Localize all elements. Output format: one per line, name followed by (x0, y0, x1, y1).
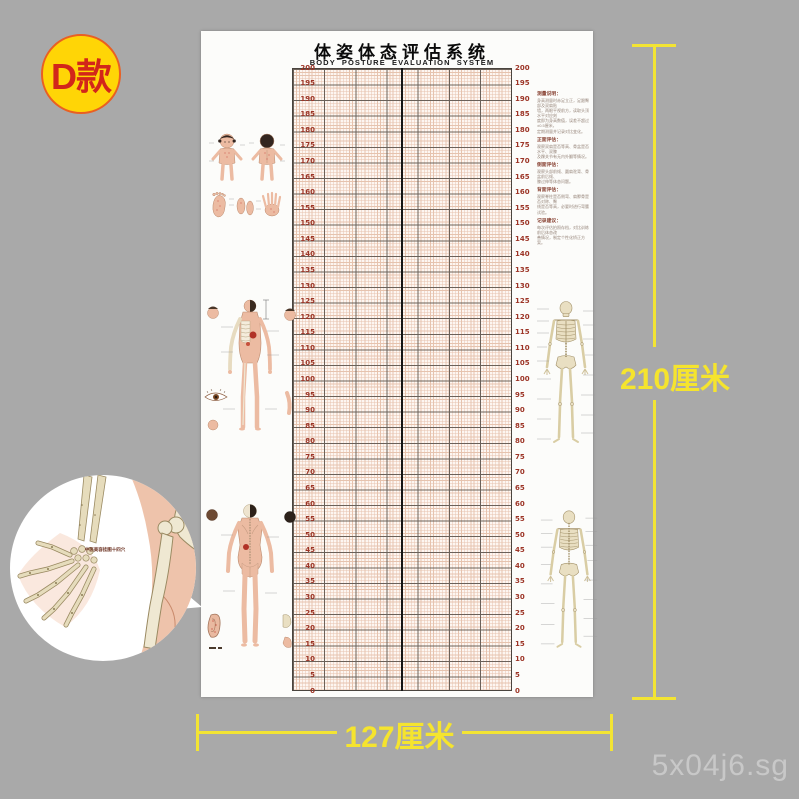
annotation-paragraph: 正面评估：观察双肩是否等高、骨盆是否水平、双膝及踝关节有无内外翻等情况。 (537, 138, 592, 159)
scale-tick-label: 130 (288, 282, 315, 291)
annotation-line: 膝过伸等体态问题。 (537, 179, 592, 184)
scale-tick-label: 25 (515, 609, 542, 618)
scale-tick-label: 65 (288, 484, 315, 493)
scale-tick-label: 140 (515, 250, 542, 259)
annotation-line: 度即为身高数值，误差不超过±0.5厘米， (537, 118, 592, 128)
scale-tick-label: 190 (288, 95, 315, 104)
hand-skeleton-illustration (10, 475, 196, 661)
annotation-line: 定期测量并记录对比变化。 (537, 129, 592, 134)
width-dim-right-cap (610, 714, 613, 751)
anatomy-front-figure (203, 297, 300, 433)
annotation-line: 每次评估拍照存档，对比训练前后体态改 (537, 225, 592, 235)
scale-tick-label: 200 (288, 64, 315, 73)
scale-tick-label: 40 (515, 562, 542, 571)
scale-tick-label: 20 (515, 624, 542, 633)
scale-tick-label: 15 (515, 640, 542, 649)
scale-tick-label: 70 (288, 468, 315, 477)
annotation-block: 测量说明：身高测量时赤足立正，足跟臀部及双肩贴墙，两眼平视前方，读取头顶水平对应… (537, 92, 592, 249)
scale-tick-label: 10 (515, 655, 542, 664)
inset-label: 中医美容挂图十四穴 (65, 547, 145, 553)
annotation-line: 观察脊柱是否侧弯、肩胛骨是否对称、臀 (537, 194, 592, 204)
scale-tick-label: 150 (288, 219, 315, 228)
scale-tick-label: 200 (515, 64, 542, 73)
scale-tick-label: 45 (515, 546, 542, 555)
scale-tick-label: 155 (288, 204, 315, 213)
baby-front-back-figure (205, 131, 290, 187)
product-badge: D款 (41, 34, 121, 114)
scale-tick-label: 145 (288, 235, 315, 244)
annotation-line: 墙，两眼平视前方，读取头顶水平对应刻 (537, 108, 592, 118)
annotation-line: 线是否等高，必要时进行弯腰试验。 (537, 204, 592, 214)
annotation-paragraph: 侧面评估：观察头部前倾、圆肩驼背、骨盆前后倾、膝过伸等体态问题。 (537, 163, 592, 184)
width-dim-line-left (199, 731, 337, 734)
scale-tick-label: 5 (288, 671, 315, 680)
scale-tick-label: 195 (288, 79, 315, 88)
width-dim-line-right (462, 731, 610, 734)
scale-tick-label: 0 (288, 687, 315, 696)
scale-tick-label: 0 (515, 687, 542, 696)
height-dim-line-lower (653, 400, 656, 697)
scale-tick-label: 180 (288, 126, 315, 135)
height-dim-line-upper (653, 47, 656, 347)
scale-tick-label: 165 (288, 173, 315, 182)
scale-tick-label: 60 (515, 500, 542, 509)
scale-tick-label: 35 (515, 577, 542, 586)
poster: 体姿体态评估系统 BODY POSTURE EVALUATION SYSTEM … (201, 31, 593, 697)
scale-tick-label: 55 (515, 515, 542, 524)
scale-tick-label: 75 (288, 453, 315, 462)
scale-tick-label: 170 (288, 157, 315, 166)
scale-tick-label: 160 (288, 188, 315, 197)
annotation-line: 及踝关节有无内外翻等情况。 (537, 154, 592, 159)
annotation-line: 观察头部前倾、圆肩驼背、骨盆前后倾、 (537, 169, 592, 179)
annotation-line: 善情况，制定个性化矫正方案。 (537, 235, 592, 245)
annotation-paragraph: 测量说明：身高测量时赤足立正，足跟臀部及双肩贴墙，两眼平视前方，读取头顶水平对应… (537, 92, 592, 134)
scale-tick-label: 5 (515, 671, 542, 680)
annotation-line: 身高测量时赤足立正，足跟臀部及双肩贴 (537, 98, 592, 108)
scale-tick-label: 135 (288, 266, 315, 275)
scale-tick-label: 175 (288, 141, 315, 150)
product-badge-label: D款 (51, 48, 111, 100)
poster-subtitle: BODY POSTURE EVALUATION SYSTEM (292, 58, 512, 67)
scale-tick-label: 75 (515, 453, 542, 462)
scale-tick-label: 80 (288, 437, 315, 446)
scale-tick-label: 70 (515, 468, 542, 477)
scale-tick-label: 135 (515, 266, 542, 275)
scale-tick-label: 65 (515, 484, 542, 493)
scale-tick-label: 50 (515, 531, 542, 540)
scale-tick-label: 10 (288, 655, 315, 664)
annotation-line: 观察双肩是否等高、骨盆是否水平、双膝 (537, 144, 592, 154)
grid-center-line (401, 68, 404, 691)
anatomy-back-figure (203, 501, 300, 653)
skeleton-back-figure (539, 507, 599, 655)
detail-bubble: 中医美容挂图十四穴 (10, 475, 196, 661)
height-dim-label: 210厘米 (620, 354, 730, 398)
scale-tick-label: 195 (515, 79, 542, 88)
scale-tick-label: 140 (288, 250, 315, 259)
scale-tick-label: 185 (288, 110, 315, 119)
scale-tick-label: 30 (515, 593, 542, 602)
skeleton-front-figure (535, 299, 597, 449)
annotation-paragraph: 记录建议：每次评估拍照存档，对比训练前后体态改善情况，制定个性化矫正方案。 (537, 219, 592, 245)
width-dim-label: 127厘米 (337, 712, 462, 756)
height-dim-bottom-cap (632, 697, 676, 700)
feet-hand-diagram (209, 191, 289, 219)
annotation-paragraph: 背面评估：观察脊柱是否侧弯、肩胛骨是否对称、臀线是否等高，必要时进行弯腰试验。 (537, 188, 592, 214)
scale-tick-label: 130 (515, 282, 542, 291)
watermark: 5x04j6.sg (652, 749, 789, 783)
